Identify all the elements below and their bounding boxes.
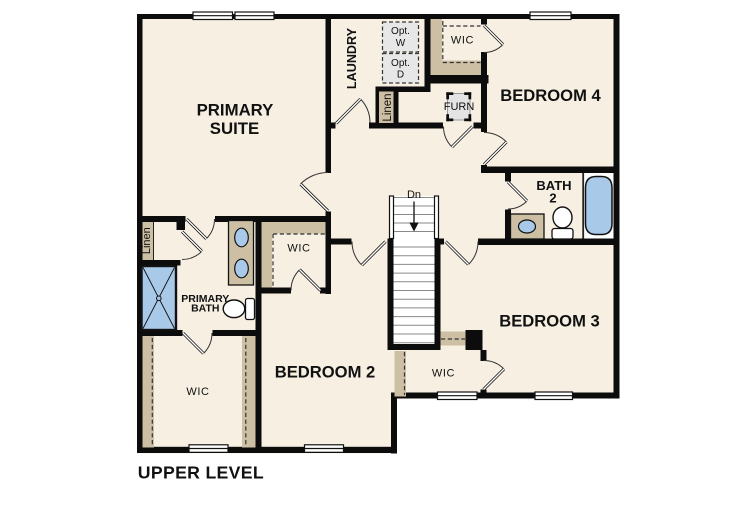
svg-text:BEDROOM 2: BEDROOM 2 <box>275 363 376 382</box>
svg-text:Dn: Dn <box>407 189 421 201</box>
svg-text:PRIMARY: PRIMARY <box>197 101 274 120</box>
svg-text:BEDROOM 4: BEDROOM 4 <box>500 86 601 105</box>
svg-text:SUITE: SUITE <box>210 119 259 138</box>
svg-text:WIC: WIC <box>451 34 474 46</box>
svg-text:Linen: Linen <box>141 227 153 254</box>
svg-text:Opt.: Opt. <box>391 58 410 69</box>
svg-text:WIC: WIC <box>432 367 455 379</box>
svg-text:Linen: Linen <box>382 93 394 121</box>
svg-text:2: 2 <box>549 190 556 205</box>
svg-text:BEDROOM 3: BEDROOM 3 <box>499 312 600 331</box>
svg-text:UPPER LEVEL: UPPER LEVEL <box>138 462 264 482</box>
svg-text:BATH: BATH <box>191 303 219 315</box>
svg-text:W: W <box>396 38 406 49</box>
svg-text:FURN: FURN <box>444 101 475 113</box>
svg-text:LAUNDRY: LAUNDRY <box>345 27 359 89</box>
svg-text:WIC: WIC <box>287 242 310 254</box>
svg-text:D: D <box>397 69 404 80</box>
svg-text:Opt.: Opt. <box>391 26 410 37</box>
svg-text:WIC: WIC <box>186 386 209 398</box>
